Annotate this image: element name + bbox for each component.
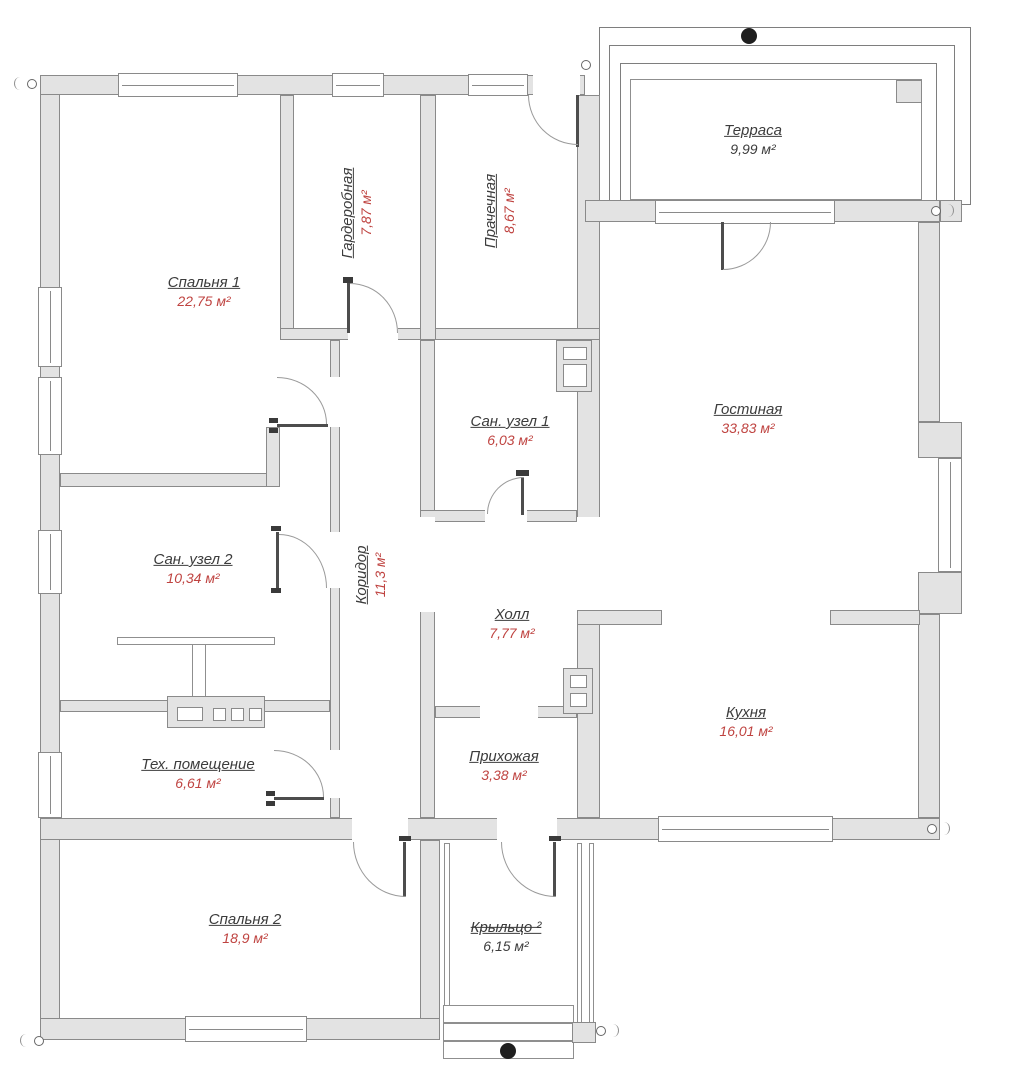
- wall-kitchen-top-right: [830, 610, 920, 625]
- door-arc-wardrobe: [350, 283, 398, 333]
- marker-right-terrace: [931, 206, 941, 216]
- wall-wardrobe-left: [280, 95, 294, 335]
- partition-san2-vertical: [192, 644, 206, 702]
- room-name-laundry: Прачечная: [482, 174, 501, 248]
- window-bedroom2-bottom: [185, 1016, 307, 1042]
- wall-mid-horizontal: [280, 328, 600, 340]
- room-area-laundry: 8,67 м²: [501, 174, 519, 248]
- room-name-terrace: Терраса: [724, 122, 782, 141]
- terrace-point-marker: [741, 28, 757, 44]
- room-label-tech: Тех. помещение 6,61 м²: [141, 756, 254, 792]
- door-hinge-san2-a: [271, 526, 281, 531]
- wall-kitchen-top-left: [577, 610, 662, 625]
- room-area-corridor: 11,3 м²: [372, 546, 390, 605]
- room-label-bedroom1: Спальня 1 22,75 м²: [168, 274, 240, 310]
- window-bedroom1-top: [118, 73, 238, 97]
- door-hinge-bedroom2: [399, 836, 411, 841]
- room-area-wardrobe: 7,87 м²: [358, 168, 376, 259]
- room-name-living: Гостиная: [714, 401, 783, 420]
- opening-porch-door: [497, 818, 557, 840]
- window-bedroom1-left-b: [38, 377, 62, 455]
- door-arc-bedroom2: [353, 842, 406, 897]
- room-label-terrace: Терраса 9,99 м²: [724, 122, 782, 158]
- wall-right-upper: [918, 222, 940, 422]
- wall-san2-stub: [266, 427, 280, 487]
- door-hinge-porch: [549, 836, 561, 841]
- room-name-corridor: Коридор: [353, 546, 372, 605]
- porch-step-1: [443, 1005, 574, 1023]
- door-arc-san1: [487, 477, 524, 514]
- opening-hall-hallway: [480, 706, 538, 718]
- window-san2-left: [38, 530, 62, 594]
- porch-rail-right-b: [589, 843, 594, 1023]
- opening-corridor-hall: [420, 517, 435, 612]
- room-area-hall: 7,77 м²: [489, 625, 534, 643]
- door-hinge-san1: [516, 470, 529, 476]
- shaft-kitchen: [563, 668, 593, 714]
- room-area-san1: 6,03 м²: [470, 432, 549, 450]
- door-arc-living-terrace: [723, 222, 771, 270]
- porch-post: [572, 1022, 596, 1043]
- room-area-living: 33,83 м²: [714, 420, 783, 438]
- opening-laundry-door: [533, 75, 580, 95]
- marker-paren-porch-right: [613, 1024, 619, 1037]
- shaft-san1: [556, 340, 592, 392]
- marker-right-kitchen: [927, 824, 937, 834]
- room-area-kitchen: 16,01 м²: [719, 723, 772, 741]
- door-arc-laundry: [528, 95, 578, 145]
- door-hinge-tech-b: [266, 801, 275, 806]
- window-laundry-top: [468, 74, 528, 96]
- room-label-wardrobe: Гардеробная 7,87 м²: [339, 168, 375, 259]
- room-label-kitchen: Кухня 16,01 м²: [719, 704, 772, 740]
- window-bedroom1-left-a: [38, 287, 62, 367]
- room-area-bedroom2: 18,9 м²: [209, 930, 281, 948]
- marker-bottom-left: [34, 1036, 44, 1046]
- opening-bedroom1-door: [330, 377, 340, 427]
- room-name-san1: Сан. узел 1: [470, 413, 549, 432]
- bay-wall-bottom: [918, 572, 962, 614]
- marker-top-left: [27, 79, 37, 89]
- room-label-porch: Крыльцо ² 6,15 м²: [471, 919, 542, 955]
- terrace-post: [896, 80, 922, 103]
- opening-tech-door: [330, 750, 340, 798]
- room-label-san2: Сан. узел 2 10,34 м²: [153, 551, 232, 587]
- wall-san2-top: [60, 473, 268, 487]
- room-area-bedroom1: 22,75 м²: [168, 293, 240, 311]
- room-name-bedroom1: Спальня 1: [168, 274, 240, 293]
- room-area-terrace: 9,99 м²: [724, 141, 782, 159]
- marker-paren-bottom-left: [20, 1034, 26, 1047]
- door-leaf-tech: [274, 797, 324, 800]
- room-name-wardrobe: Гардеробная: [339, 168, 358, 259]
- room-name-san2: Сан. узел 2: [153, 551, 232, 570]
- wall-bedroom2-right: [420, 840, 440, 1040]
- room-label-san1: Сан. узел 1 6,03 м²: [470, 413, 549, 449]
- window-wardrobe-top: [332, 73, 384, 97]
- marker-paren-top-left: [14, 77, 20, 90]
- wall-laundry-left: [420, 95, 436, 340]
- room-name-hallway: Прихожая: [469, 748, 539, 767]
- room-label-corridor: Коридор 11,3 м²: [353, 546, 389, 605]
- window-kitchen-bottom: [658, 816, 833, 842]
- room-name-bedroom2: Спальня 2: [209, 911, 281, 930]
- room-area-san2: 10,34 м²: [153, 570, 232, 588]
- room-label-bedroom2: Спальня 2 18,9 м²: [209, 911, 281, 947]
- marker-porch-right: [596, 1026, 606, 1036]
- door-arc-bedroom1: [277, 377, 327, 424]
- door-hinge-tech-a: [266, 791, 275, 796]
- floor-plan: Терраса 9,99 м² Спальня 1 22,75 м² Гарде…: [0, 0, 1009, 1080]
- door-leaf-bedroom1: [277, 424, 328, 427]
- door-arc-tech: [274, 750, 324, 797]
- room-name-kitchen: Кухня: [719, 704, 772, 723]
- porch-step-2: [443, 1023, 574, 1041]
- door-arc-san2: [279, 534, 327, 588]
- door-hinge-bedroom1-b: [269, 428, 278, 433]
- room-name-tech: Тех. помещение: [141, 756, 254, 775]
- room-label-laundry: Прачечная 8,67 м²: [482, 174, 518, 248]
- room-area-tech: 6,61 м²: [141, 775, 254, 793]
- bay-wall-top: [918, 422, 962, 458]
- porch-rail-right-a: [577, 843, 582, 1023]
- room-name-hall: Холл: [489, 606, 534, 625]
- marker-top-laundry: [581, 60, 591, 70]
- room-area-hallway: 3,38 м²: [469, 767, 539, 785]
- heating-manifold: [167, 696, 265, 728]
- wall-right-lower: [918, 614, 940, 818]
- door-arc-porch: [501, 842, 556, 897]
- marker-paren-right-kitchen: [944, 822, 950, 835]
- opening-san2-door: [330, 532, 340, 588]
- porch-rail-left: [444, 843, 450, 1007]
- room-name-porch: Крыльцо ²: [471, 919, 542, 938]
- door-hinge-wardrobe: [343, 277, 353, 283]
- room-label-hallway: Прихожая 3,38 м²: [469, 748, 539, 784]
- door-hinge-san2-b: [271, 588, 281, 593]
- window-living-bay: [938, 458, 962, 572]
- window-living-top: [655, 200, 835, 224]
- opening-hall-living: [577, 517, 600, 610]
- window-tech-left: [38, 752, 62, 818]
- door-hinge-bedroom1-a: [269, 418, 278, 423]
- porch-point-marker: [500, 1043, 516, 1059]
- room-label-hall: Холл 7,77 м²: [489, 606, 534, 642]
- bay-recess-interior: [918, 458, 940, 572]
- room-label-living: Гостиная 33,83 м²: [714, 401, 783, 437]
- room-area-porch: 6,15 м²: [471, 938, 542, 956]
